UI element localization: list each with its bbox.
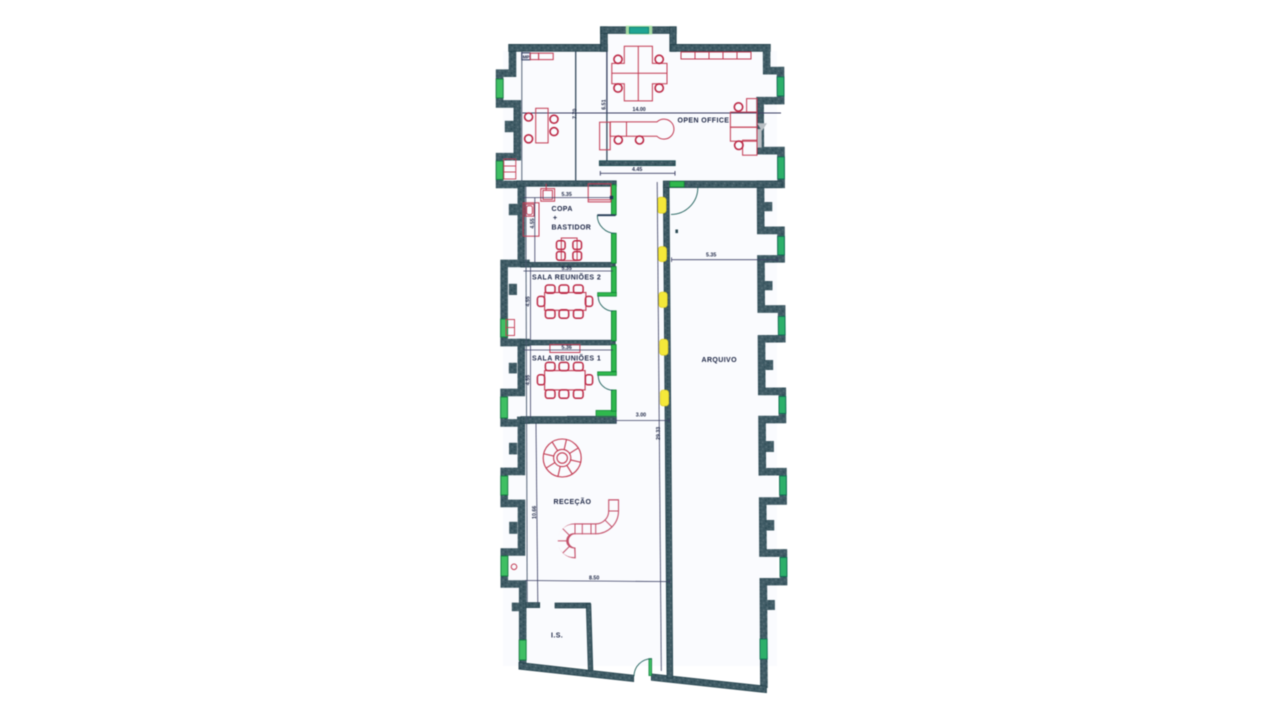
svg-text:7.70: 7.70: [573, 109, 579, 119]
svg-text:SALA REUNIÕES 1: SALA REUNIÕES 1: [532, 354, 601, 363]
svg-text:4.45: 4.45: [632, 167, 642, 173]
svg-text:BASTIDOR: BASTIDOR: [552, 225, 592, 232]
svg-text:I.S.: I.S.: [551, 633, 563, 640]
svg-text:5.35: 5.35: [562, 192, 572, 198]
svg-text:8.50: 8.50: [589, 576, 599, 582]
svg-text:4.55: 4.55: [526, 296, 532, 306]
svg-text:4.55: 4.55: [526, 375, 532, 385]
svg-text:3.00: 3.00: [636, 412, 646, 418]
svg-text:RECEÇÃO: RECEÇÃO: [554, 497, 592, 506]
svg-text:5.35: 5.35: [706, 252, 716, 258]
svg-text:+: +: [553, 215, 558, 222]
svg-text:ARQUIVO: ARQUIVO: [702, 357, 738, 364]
svg-text:MP: MP: [523, 54, 530, 59]
svg-text:10.66: 10.66: [532, 506, 538, 519]
svg-text:OPEN OFFICE: OPEN OFFICE: [678, 118, 730, 125]
svg-text:5.35: 5.35: [562, 266, 572, 272]
svg-text:5.36: 5.36: [562, 345, 572, 351]
svg-text:SALA REUNIÕES 2: SALA REUNIÕES 2: [532, 273, 601, 282]
svg-text:COPA: COPA: [552, 206, 573, 213]
svg-text:29.33: 29.33: [656, 427, 662, 440]
svg-text:4.55: 4.55: [530, 218, 536, 228]
svg-text:6.51: 6.51: [602, 99, 608, 109]
svg-text:14.00: 14.00: [633, 107, 646, 113]
